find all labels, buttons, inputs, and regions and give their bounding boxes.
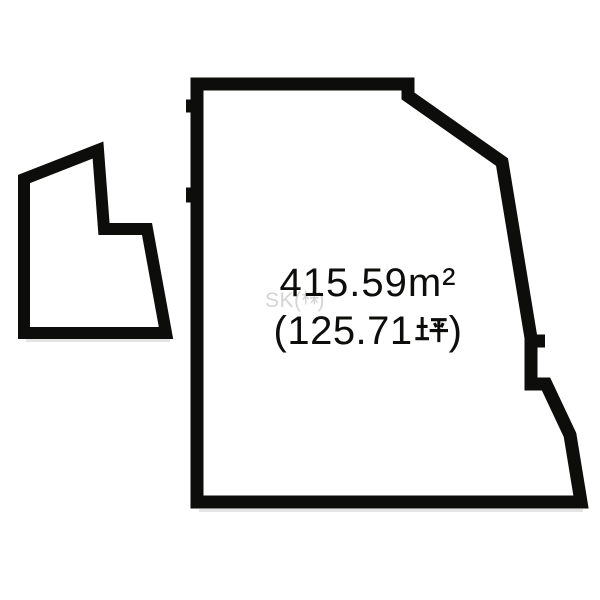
area-m2-text: 415.59m²: [233, 262, 503, 304]
tsubo-close-text: ): [449, 310, 463, 352]
land-plot-diagram: SK( ) 415.59m² (125.71 ): [0, 0, 600, 600]
kanji-tsubo-glyph: [414, 311, 448, 354]
area-tsubo-text: (125.71 ): [233, 309, 503, 352]
tsubo-open-text: (125.71: [274, 310, 413, 352]
area-label: 415.59m² (125.71 ): [233, 262, 503, 352]
left-parcel-outline: [24, 150, 166, 333]
